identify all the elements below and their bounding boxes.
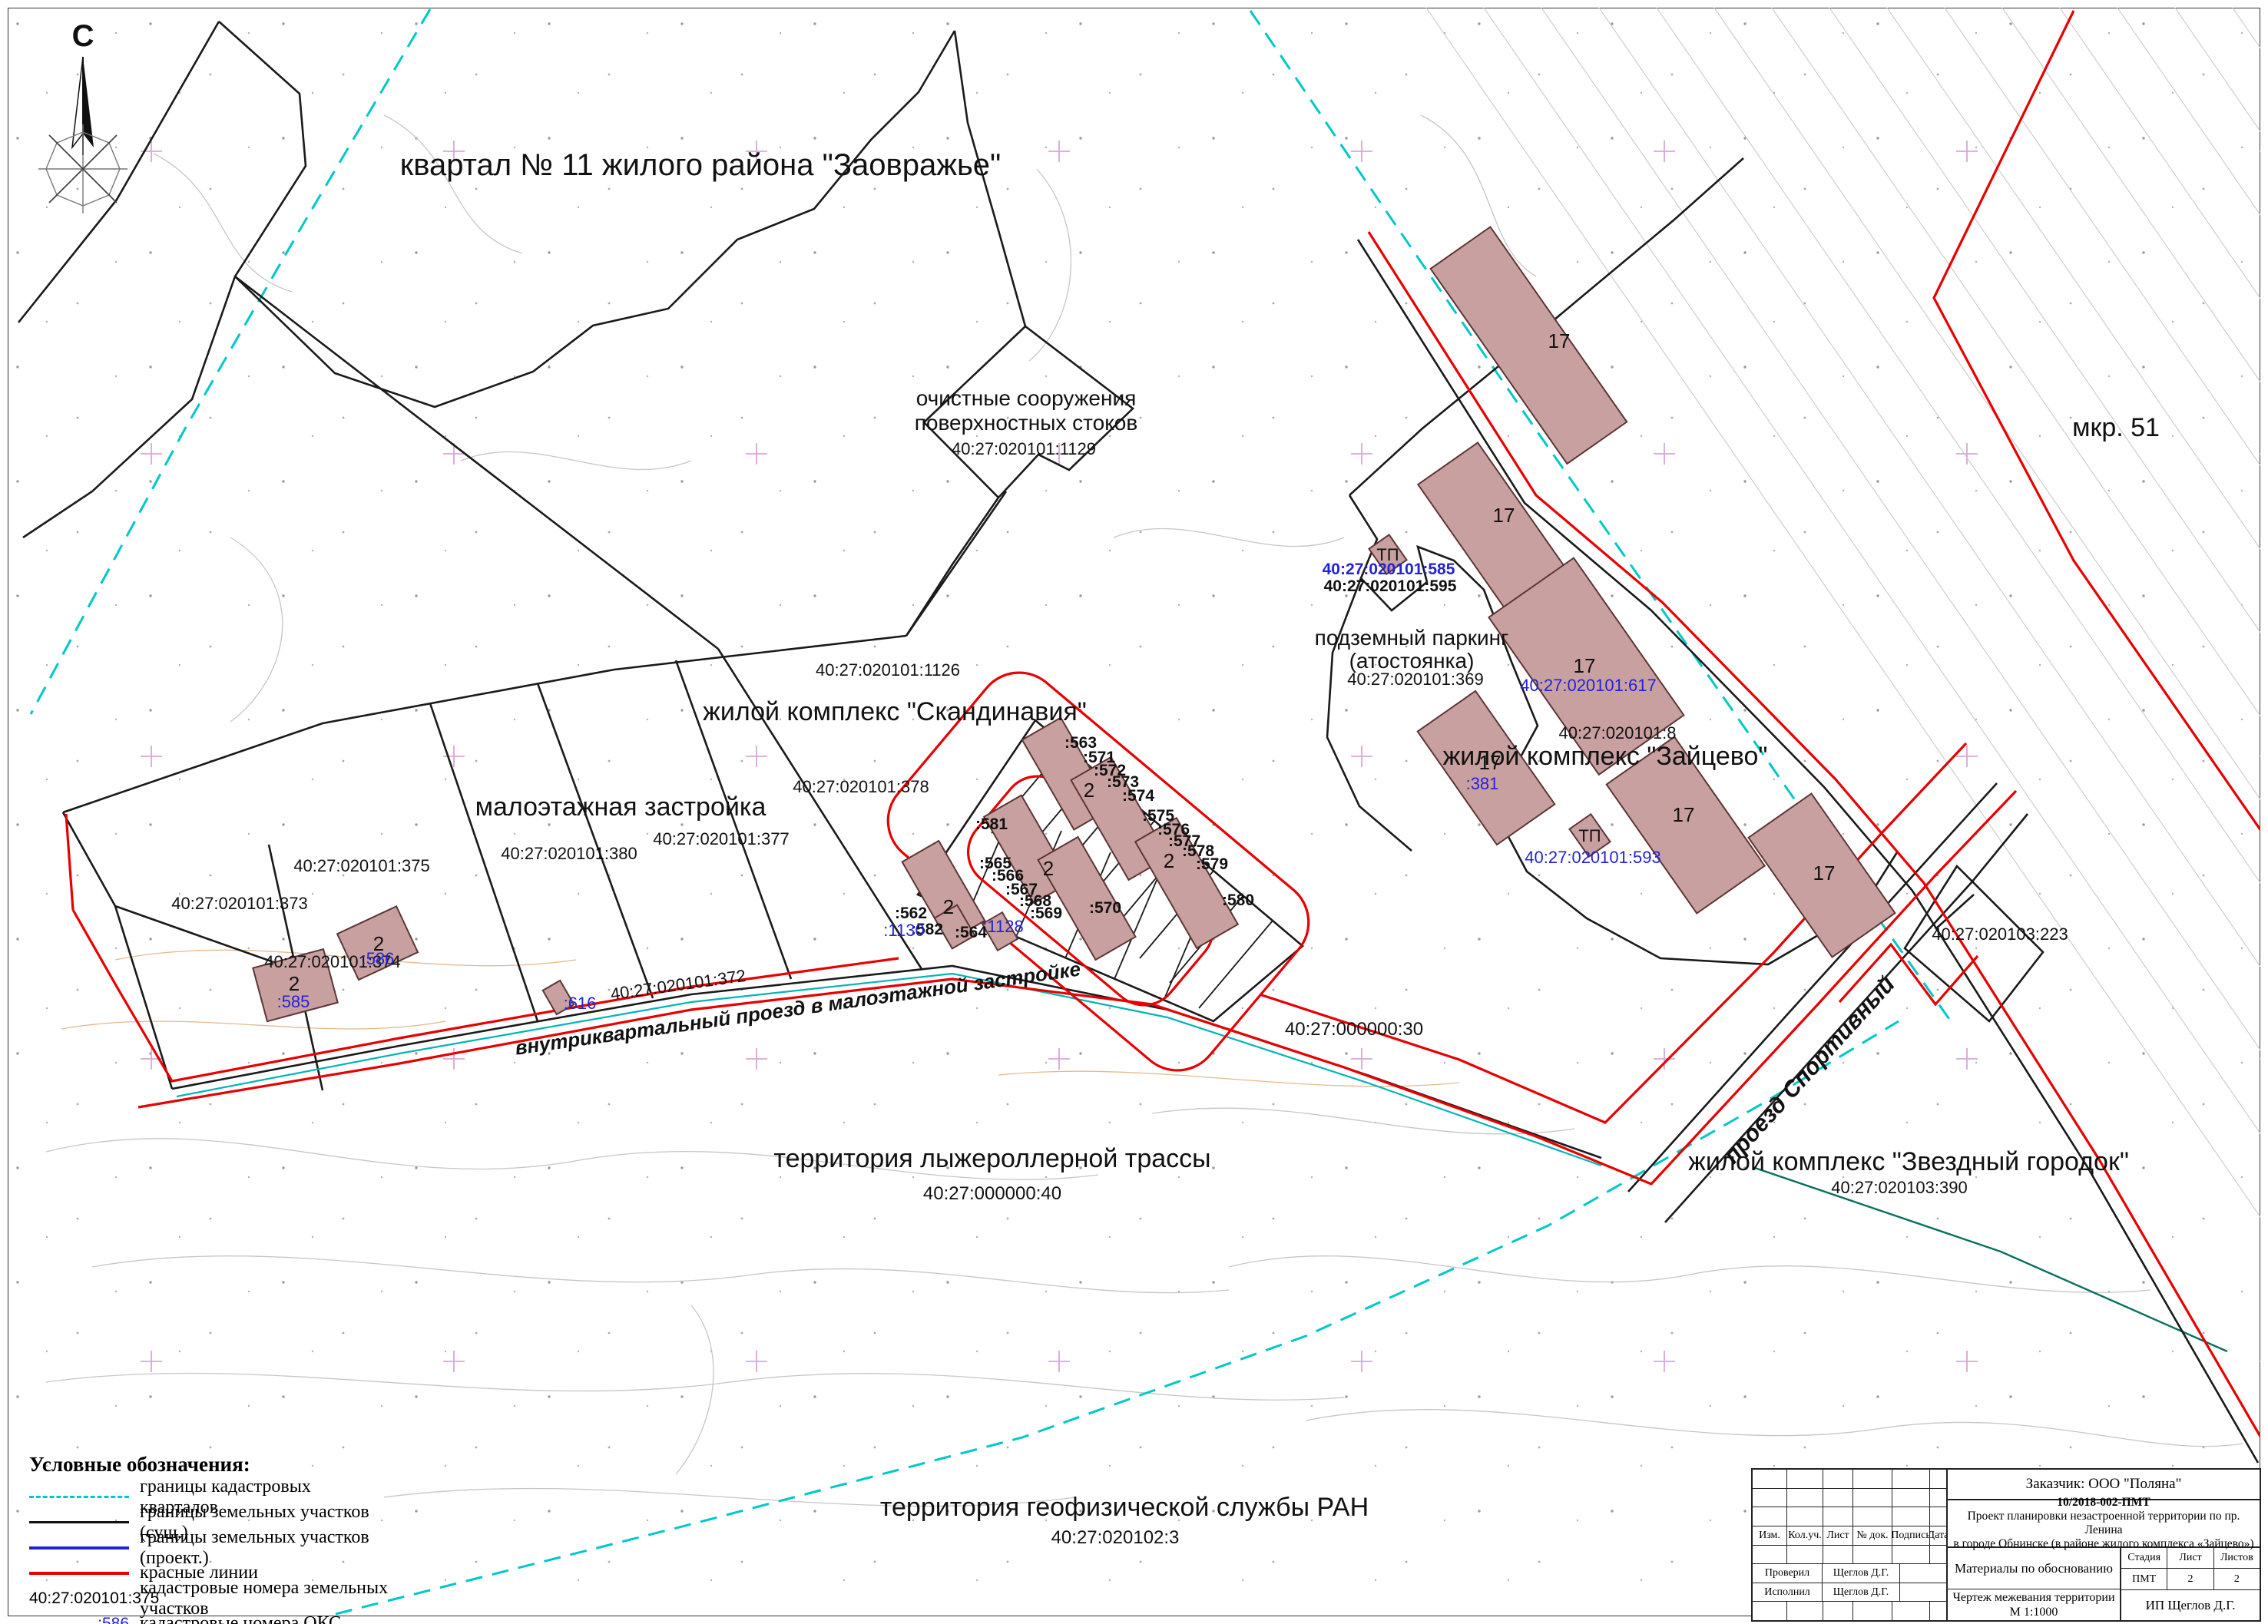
legend-title: Условные обозначения: bbox=[29, 1453, 390, 1477]
cadastral-number: 40:27:020101:8 bbox=[1559, 723, 1677, 743]
building-number: 17 bbox=[1673, 803, 1695, 826]
plot-number: :580 bbox=[1222, 891, 1254, 909]
drawing-scale: М 1:1000 bbox=[2010, 1605, 2058, 1619]
plot-number: :581 bbox=[975, 815, 1008, 833]
legend-item-oks-numbers: :586 кадастровые номера ОКС bbox=[29, 1611, 390, 1624]
building-number: 2 bbox=[1084, 779, 1094, 802]
building-number: 17 bbox=[1548, 329, 1571, 352]
area-label-ochistnye2: поверхностных стоков bbox=[915, 411, 1137, 435]
survey-drawing-sheet: С квартал № 11 жилого района "Заовражье"… bbox=[0, 0, 2268, 1624]
cadastral-number: 40:27:020101:373 bbox=[171, 894, 307, 913]
substation-label: ТП bbox=[1578, 826, 1601, 845]
oks-number: 40:27:020101:593 bbox=[1525, 848, 1660, 867]
oks-number-sample: :586 bbox=[29, 1615, 129, 1624]
north-label: С bbox=[72, 19, 94, 53]
area-label-parking: подземный паркинг bbox=[1315, 626, 1509, 650]
oks-number: :586 bbox=[362, 949, 395, 968]
title-block: Изм. Кол.уч. Лист № док. Подпись Дата Пр… bbox=[1751, 1468, 2261, 1622]
cadastral-number: 40:27:020101:380 bbox=[501, 844, 637, 863]
legend-item-project-borders: границы земельных участков (проект.) bbox=[29, 1535, 390, 1560]
area-label-maloetazhnaya: малоэтажная застройка bbox=[475, 792, 766, 822]
drawing-title-line1: Чертеж межевания территории bbox=[1952, 1590, 2114, 1605]
cadastral-number: 40:27:020103:223 bbox=[1932, 924, 2068, 944]
building-number: 17 bbox=[1479, 751, 1502, 774]
building-number: 17 bbox=[1813, 862, 1836, 885]
blue-line-swatch bbox=[29, 1546, 129, 1550]
executed-name: Щеглов Д.Г. bbox=[1823, 1583, 1900, 1602]
drawing-title: Чертеж межевания территории М 1:1000 bbox=[1948, 1589, 2120, 1620]
stage-value-row: ПМТ 2 2 bbox=[2121, 1569, 2260, 1590]
building-number: 2 bbox=[1043, 857, 1054, 880]
cadastral-number: 40:27:000000:40 bbox=[923, 1183, 1061, 1204]
cadastral-number: 40:27:020103:390 bbox=[1831, 1178, 1967, 1197]
building-number: 2 bbox=[1164, 849, 1174, 872]
parcel-number-sample: 40:27:020101:375 bbox=[29, 1589, 129, 1608]
plot-number: :579 bbox=[1196, 855, 1228, 873]
area-label-mkr51: мкр. 51 bbox=[2072, 413, 2160, 442]
col-data: Дата bbox=[1930, 1526, 1946, 1545]
red-line-swatch bbox=[29, 1572, 129, 1575]
oks-number: :1130 bbox=[883, 921, 924, 940]
checked-label: Проверил bbox=[1753, 1564, 1823, 1583]
black-line-swatch bbox=[29, 1521, 129, 1523]
area-label-zvezdny: жилой комплекс "Звездный городок" bbox=[1688, 1147, 2129, 1176]
cadastral-number: 40:27:020102:3 bbox=[1051, 1527, 1180, 1548]
section-title: Материалы по обоснованию bbox=[1948, 1548, 2120, 1589]
title-block-revision-grid: Изм. Кол.уч. Лист № док. Подпись Дата Пр… bbox=[1753, 1470, 1948, 1620]
author-organization: ИП Щеглов Д.Г. bbox=[2121, 1590, 2260, 1620]
cadastral-number: 40:27:020101:378 bbox=[793, 777, 929, 796]
legend: Условные обозначения: границы кадастровы… bbox=[29, 1453, 390, 1624]
territory-map: С квартал № 11 жилого района "Заовражье"… bbox=[0, 0, 2268, 1624]
plot-number: :574 bbox=[1122, 787, 1154, 805]
cadastral-number: 40:27:020101:377 bbox=[653, 829, 789, 848]
col-ndok: № док. bbox=[1853, 1526, 1892, 1545]
legend-item-label: кадастровые номера ОКС bbox=[140, 1613, 341, 1624]
oks-number: :616 bbox=[564, 994, 597, 1013]
cadastral-number: 40:27:020101:369 bbox=[1347, 670, 1483, 689]
col-podpis: Подпись bbox=[1892, 1526, 1930, 1545]
building-number: 2 bbox=[943, 895, 954, 918]
area-label-skandinavia: жилой комплекс "Скандинавия" bbox=[703, 697, 1087, 726]
executed-label: Исполнил bbox=[1753, 1583, 1823, 1602]
sheet-value: 2 bbox=[2167, 1569, 2213, 1589]
checked-row: Проверил Щеглов Д.Г. bbox=[1753, 1564, 1946, 1583]
sheet-label: Лист bbox=[2167, 1548, 2213, 1568]
plot-number: :570 bbox=[1089, 899, 1121, 917]
col-izm: Изм. bbox=[1753, 1526, 1787, 1545]
cyan-dashed-line-swatch bbox=[29, 1496, 129, 1498]
project-name-line1: Проект планировки незастроенной территор… bbox=[1948, 1510, 2260, 1537]
cadastral-number: 40:27:020101:1129 bbox=[952, 439, 1096, 458]
cadastral-number: 40:27:020101:1126 bbox=[816, 660, 960, 680]
cadastral-number: 40:27:000000:30 bbox=[1285, 1019, 1423, 1040]
area-label-geo: территория геофизической службы РАН bbox=[880, 1493, 1369, 1522]
legend-item-parcel-numbers: 40:27:020101:375 кадастровые номера земе… bbox=[29, 1586, 390, 1611]
plot-number: :569 bbox=[1030, 905, 1062, 922]
oks-number: :1128 bbox=[982, 917, 1023, 936]
stage-header-row: Стадия Лист Листов bbox=[2121, 1548, 2260, 1569]
area-label-kvartal11: квартал № 11 жилого района "Заовражье" bbox=[400, 148, 1002, 182]
building-number: 17 bbox=[1574, 654, 1596, 677]
area-label-ski: территория лыжероллерной трассы bbox=[773, 1144, 1210, 1173]
cadastral-number: 40:27:020101:375 bbox=[293, 856, 429, 875]
revision-header-row: Изм. Кол.уч. Лист № док. Подпись Дата bbox=[1753, 1526, 1946, 1546]
plot-number: :562 bbox=[895, 905, 927, 922]
executed-row: Исполнил Щеглов Д.Г. bbox=[1753, 1583, 1946, 1603]
oks-number: :381 bbox=[1466, 774, 1499, 793]
col-list: Лист bbox=[1823, 1526, 1853, 1545]
col-koluch: Кол.уч. bbox=[1787, 1526, 1823, 1545]
sheets-label: Листов bbox=[2214, 1548, 2260, 1568]
area-label-ochistnye: очистные сооружения bbox=[916, 386, 1137, 410]
stage-value: ПМТ bbox=[2121, 1569, 2167, 1589]
project-code: 10/2018-002-ПМТ bbox=[2057, 1496, 2150, 1510]
building-number: 17 bbox=[1493, 504, 1515, 527]
checked-name: Щеглов Д.Г. bbox=[1823, 1564, 1900, 1583]
oks-number: 40:27:020101:617 bbox=[1520, 676, 1656, 695]
sheets-value: 2 bbox=[2214, 1569, 2260, 1589]
oks-number: :585 bbox=[277, 992, 310, 1011]
project-title: 10/2018-002-ПМТ Проект планировки незаст… bbox=[1948, 1500, 2260, 1548]
cadastral-number: 40:27:020101:595 bbox=[1324, 577, 1457, 595]
stage-label: Стадия bbox=[2121, 1548, 2167, 1568]
substation-label: ТП bbox=[1376, 545, 1399, 564]
